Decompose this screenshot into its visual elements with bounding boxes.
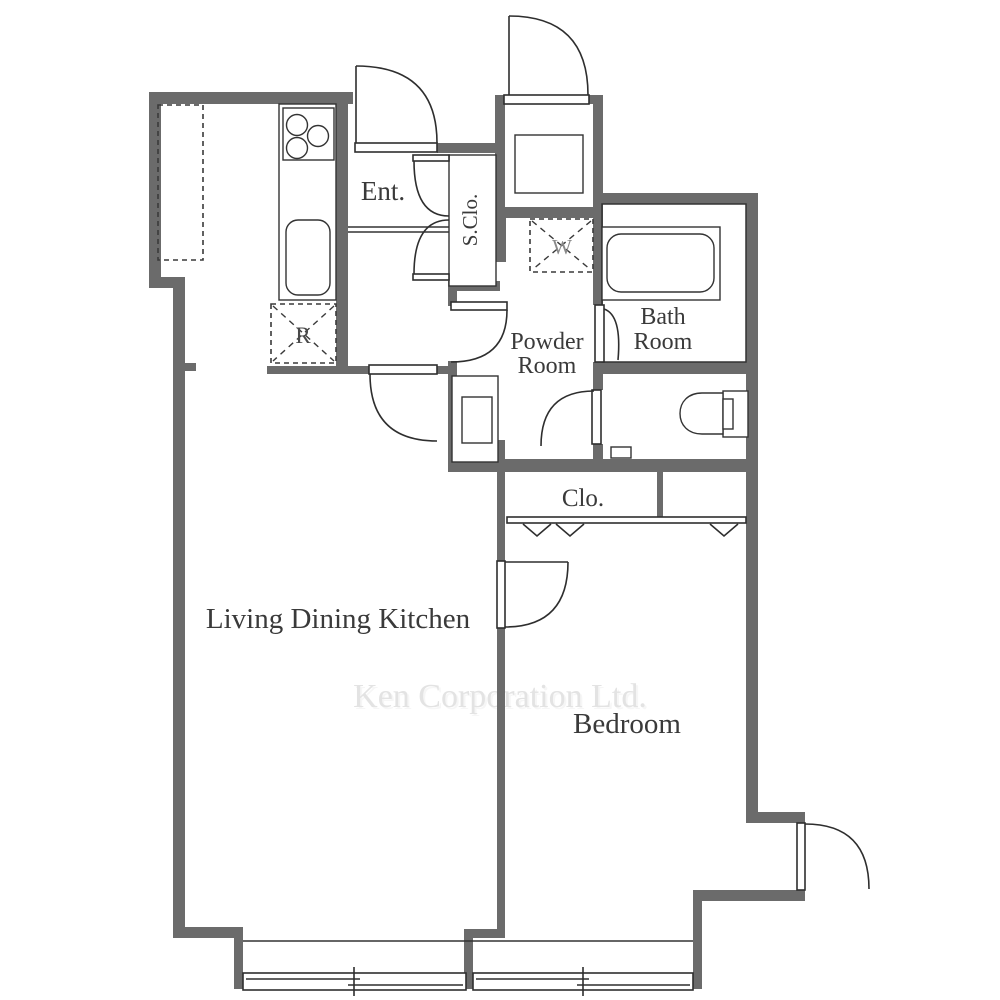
floor-plan-drawing: Ken Corporation Ltd. Ken Corporation Ltd… xyxy=(0,0,1000,1000)
shoe-closet-door-panel xyxy=(413,155,449,161)
wall-bedroom-right-lower xyxy=(693,890,702,989)
washer-label: W xyxy=(552,235,572,259)
wall-bottom-left-jog xyxy=(173,927,243,938)
wall-bath-toilet-divider xyxy=(598,362,758,374)
refrigerator-label: R xyxy=(295,323,311,348)
shoe-closet-door-panel xyxy=(413,274,449,280)
wall-kitchen-east xyxy=(336,92,348,374)
wall-top-right xyxy=(598,193,758,204)
utility-door-leaf xyxy=(504,95,589,104)
wall-hall-south-west xyxy=(267,366,370,374)
wall-utility-south xyxy=(495,207,600,218)
bath-room-label-line2: Room xyxy=(634,329,693,355)
toilet-door-leaf xyxy=(592,390,601,444)
closet-front-rail xyxy=(507,517,746,523)
entrance-label: Ent. xyxy=(361,176,405,206)
bedroom-door-leaf xyxy=(497,561,505,628)
meter-box xyxy=(515,135,583,193)
closet-label: Clo. xyxy=(562,485,604,512)
bedroom-label: Bedroom xyxy=(573,708,681,740)
hall-door-leaf xyxy=(369,365,437,374)
wall-left-stub xyxy=(173,363,196,371)
burner-icon xyxy=(287,138,308,159)
toilet-remote xyxy=(611,447,631,458)
wall-closet-divider xyxy=(657,472,663,518)
bathtub-inner xyxy=(607,234,714,292)
living-dining-kitchen-label: Living Dining Kitchen xyxy=(206,603,471,635)
powder-room-label-line1: Powder xyxy=(510,329,583,355)
bath-door-leaf xyxy=(595,305,604,362)
kitchen-sink-icon xyxy=(286,220,330,295)
floor-plan: Ken Corporation Ltd. Ken Corporation Ltd… xyxy=(0,0,1000,1000)
wall-left-lower xyxy=(173,277,185,938)
wall-entrance-north xyxy=(437,143,500,153)
wall-bedroom-south xyxy=(693,890,805,901)
toilet-tank-lip xyxy=(723,399,733,429)
burner-icon xyxy=(308,126,329,147)
powder-door-leaf xyxy=(451,302,507,310)
wall-shoe-closet-east-stub xyxy=(496,212,506,262)
shoe-closet-label: S.Clo. xyxy=(458,194,482,247)
toilet-bowl xyxy=(680,393,723,434)
wall-right xyxy=(746,193,758,823)
wall-bedroom-step xyxy=(746,812,805,823)
bathtub-icon xyxy=(602,227,720,300)
wall-left-upper xyxy=(149,92,161,288)
bath-room-label-line1: Bath xyxy=(640,304,685,330)
wall-partition-lower xyxy=(497,628,505,938)
washbasin-bowl xyxy=(462,397,492,443)
entrance-door-leaf xyxy=(355,143,437,152)
wall-top xyxy=(149,92,353,104)
balcony-door-leaf xyxy=(797,823,805,890)
washbasin-icon xyxy=(452,376,498,462)
kitchen-counter xyxy=(279,104,336,300)
wall-bottom-left-pillar xyxy=(234,927,243,989)
powder-room-label-line2: Room xyxy=(518,353,577,379)
burner-icon xyxy=(287,115,308,136)
